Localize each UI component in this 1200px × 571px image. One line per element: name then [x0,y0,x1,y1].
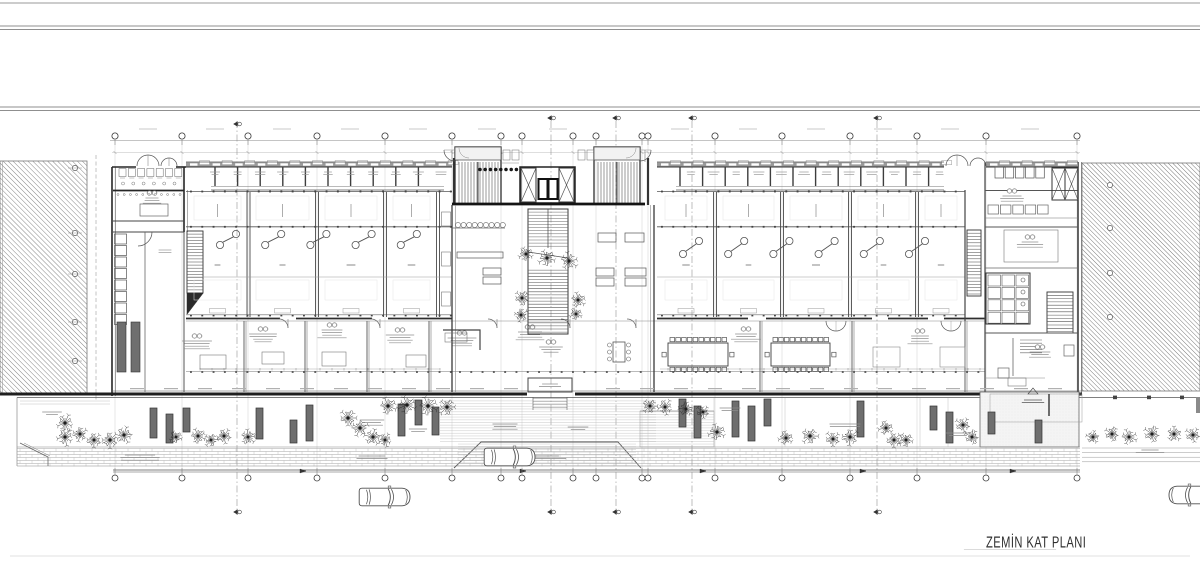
svg-text:ZEMİN KAT PLANI: ZEMİN KAT PLANI [986,534,1086,551]
